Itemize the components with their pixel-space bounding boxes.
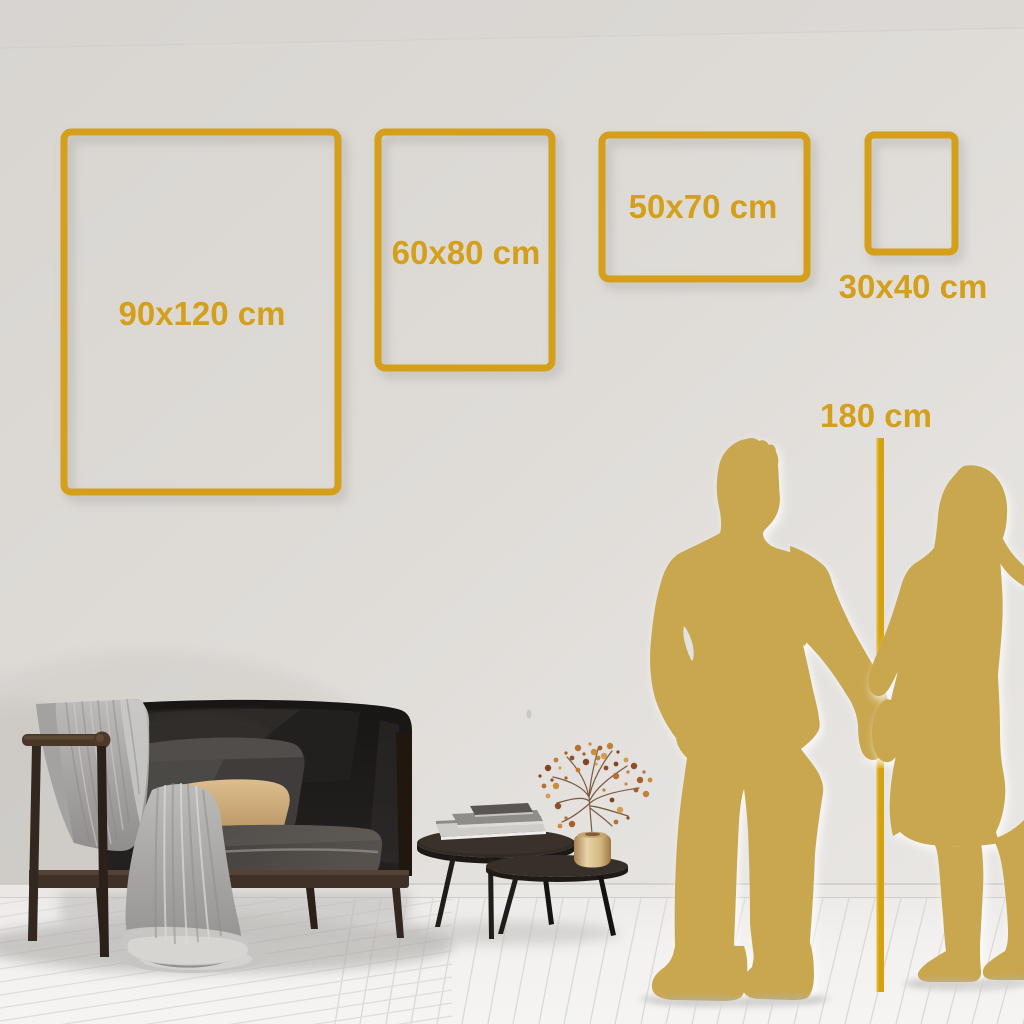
svg-text:30x40 cm: 30x40 cm — [839, 268, 988, 305]
svg-text:60x80 cm: 60x80 cm — [392, 234, 541, 271]
svg-text:180 cm: 180 cm — [820, 397, 932, 434]
svg-text:50x70 cm: 50x70 cm — [629, 188, 778, 225]
svg-text:90x120 cm: 90x120 cm — [119, 295, 286, 332]
